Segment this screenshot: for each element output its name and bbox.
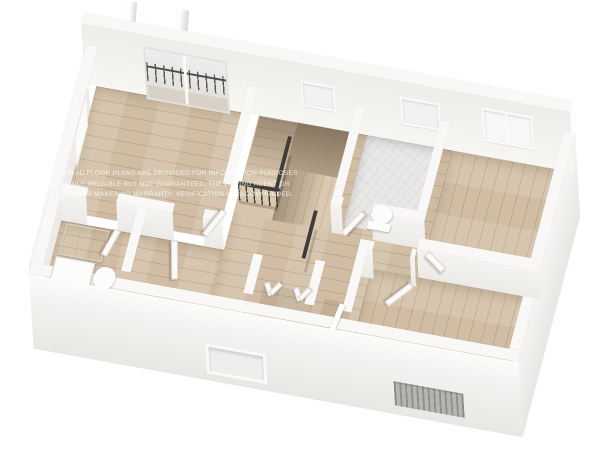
watermark-line: OUR 3D FLOOR PLANS ARE PROVIDED FOR INFO… bbox=[28, 169, 328, 180]
watermark-line: ONLY. RELIABLE BUT NOT GUARANTEED. THE L… bbox=[28, 180, 328, 191]
facade-vent-grille bbox=[394, 381, 465, 418]
stairwell-window bbox=[300, 81, 336, 112]
window-mullion bbox=[505, 114, 509, 144]
bedroom-right-window bbox=[481, 108, 534, 150]
bathroom-window bbox=[400, 97, 441, 131]
door-mullion bbox=[183, 55, 189, 104]
facade-window bbox=[205, 343, 267, 384]
floor-plan-render: OUR 3D FLOOR PLANS ARE PROVIDED FOR INFO… bbox=[0, 0, 600, 450]
door-left-room bbox=[171, 240, 178, 280]
watermark: OUR 3D FLOOR PLANS ARE PROVIDED FOR INFO… bbox=[28, 169, 328, 201]
watermark-line: BROKER MAKES NO WARRANTY. VERIFICATION I… bbox=[28, 190, 328, 201]
